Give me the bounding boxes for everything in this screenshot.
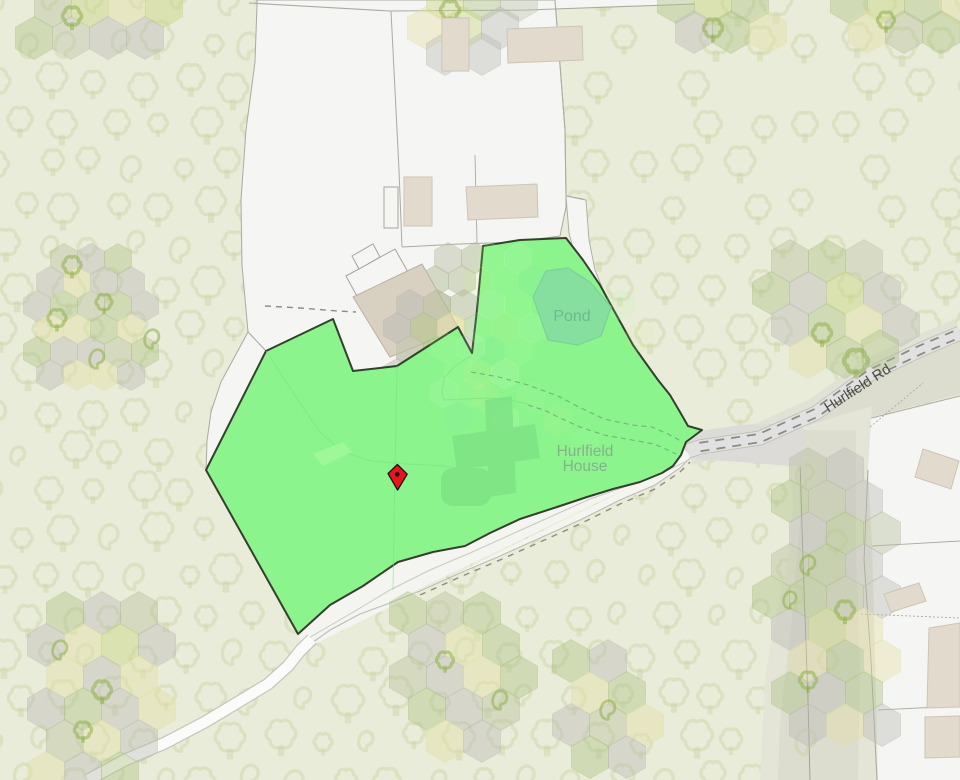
svg-text:House: House <box>563 458 608 475</box>
svg-text:Pond: Pond <box>553 308 590 325</box>
